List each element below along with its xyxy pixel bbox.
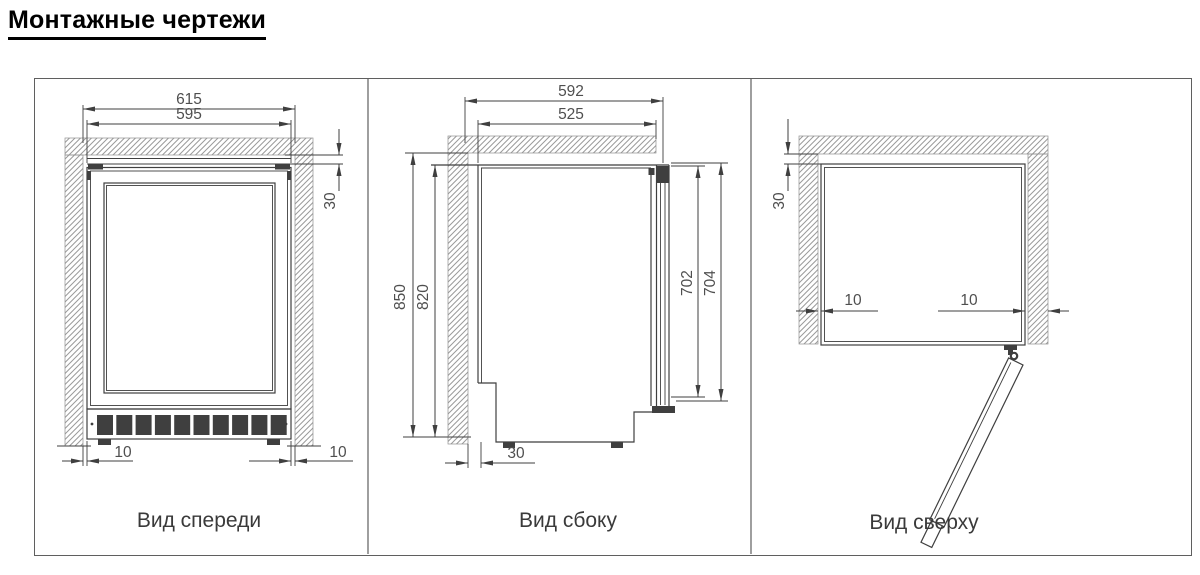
side-dim-body-height-label: 820	[415, 284, 432, 310]
front-hinge-left	[88, 164, 103, 170]
side-dim-door-height-label: 704	[702, 270, 719, 296]
front-view-drawing: 615 595 30	[57, 91, 353, 532]
top-dim-rear-clearance-label: 30	[771, 192, 788, 210]
front-dim-top-clearance-label: 30	[322, 192, 339, 210]
side-hinge-top	[656, 166, 669, 183]
top-cabinet-body	[821, 164, 1025, 345]
side-dim-body-depth: 525	[478, 106, 656, 163]
side-niche-walls	[448, 136, 656, 444]
side-dim-door-inner-height-label: 702	[679, 270, 696, 296]
side-hinge-bottom	[652, 406, 675, 413]
front-view-caption: Вид спереди	[137, 509, 261, 532]
top-dim-right-clearance-label: 10	[960, 292, 978, 309]
front-top-strip	[87, 159, 291, 168]
front-niche-walls	[57, 138, 321, 446]
front-hinge-right	[275, 164, 290, 170]
top-door-hinge	[1004, 345, 1017, 359]
front-dim-body-width-label: 595	[176, 106, 202, 123]
side-foot-rear	[611, 442, 623, 448]
front-vent-grille	[87, 409, 291, 445]
side-dim-rear-clearance-label: 30	[507, 445, 525, 462]
side-dim-body-height: 820	[415, 165, 435, 437]
drawing-frame: 615 595 30	[34, 78, 1192, 556]
side-dim-niche-height-label: 850	[392, 284, 409, 310]
front-foot-right	[267, 439, 280, 445]
front-dim-right-clearance-label: 10	[329, 444, 347, 461]
side-view-caption: Вид сбоку	[519, 509, 617, 532]
front-door-glass	[104, 183, 275, 393]
side-dim-niche-depth-label: 592	[558, 83, 584, 100]
top-dim-right-clearance: 10	[938, 292, 1069, 311]
page-title: Монтажные чертежи	[8, 6, 266, 40]
top-view-drawing: 30 10 10 Вид сверху	[771, 119, 1069, 548]
installation-drawings-svg: 615 595 30	[35, 79, 1190, 554]
side-dim-door-inner-height: 702	[671, 166, 705, 397]
side-door	[649, 165, 676, 413]
front-dim-left-clearance-label: 10	[114, 444, 132, 461]
side-dim-body-depth-label: 525	[558, 106, 584, 123]
top-dim-left-clearance-label: 10	[844, 292, 862, 309]
front-door	[87, 164, 291, 409]
top-view-caption: Вид сверху	[869, 511, 979, 534]
front-foot-left	[98, 439, 111, 445]
side-dim-rear-clearance: 30	[445, 442, 535, 468]
side-view-drawing: 592 525 850 820	[392, 83, 728, 532]
